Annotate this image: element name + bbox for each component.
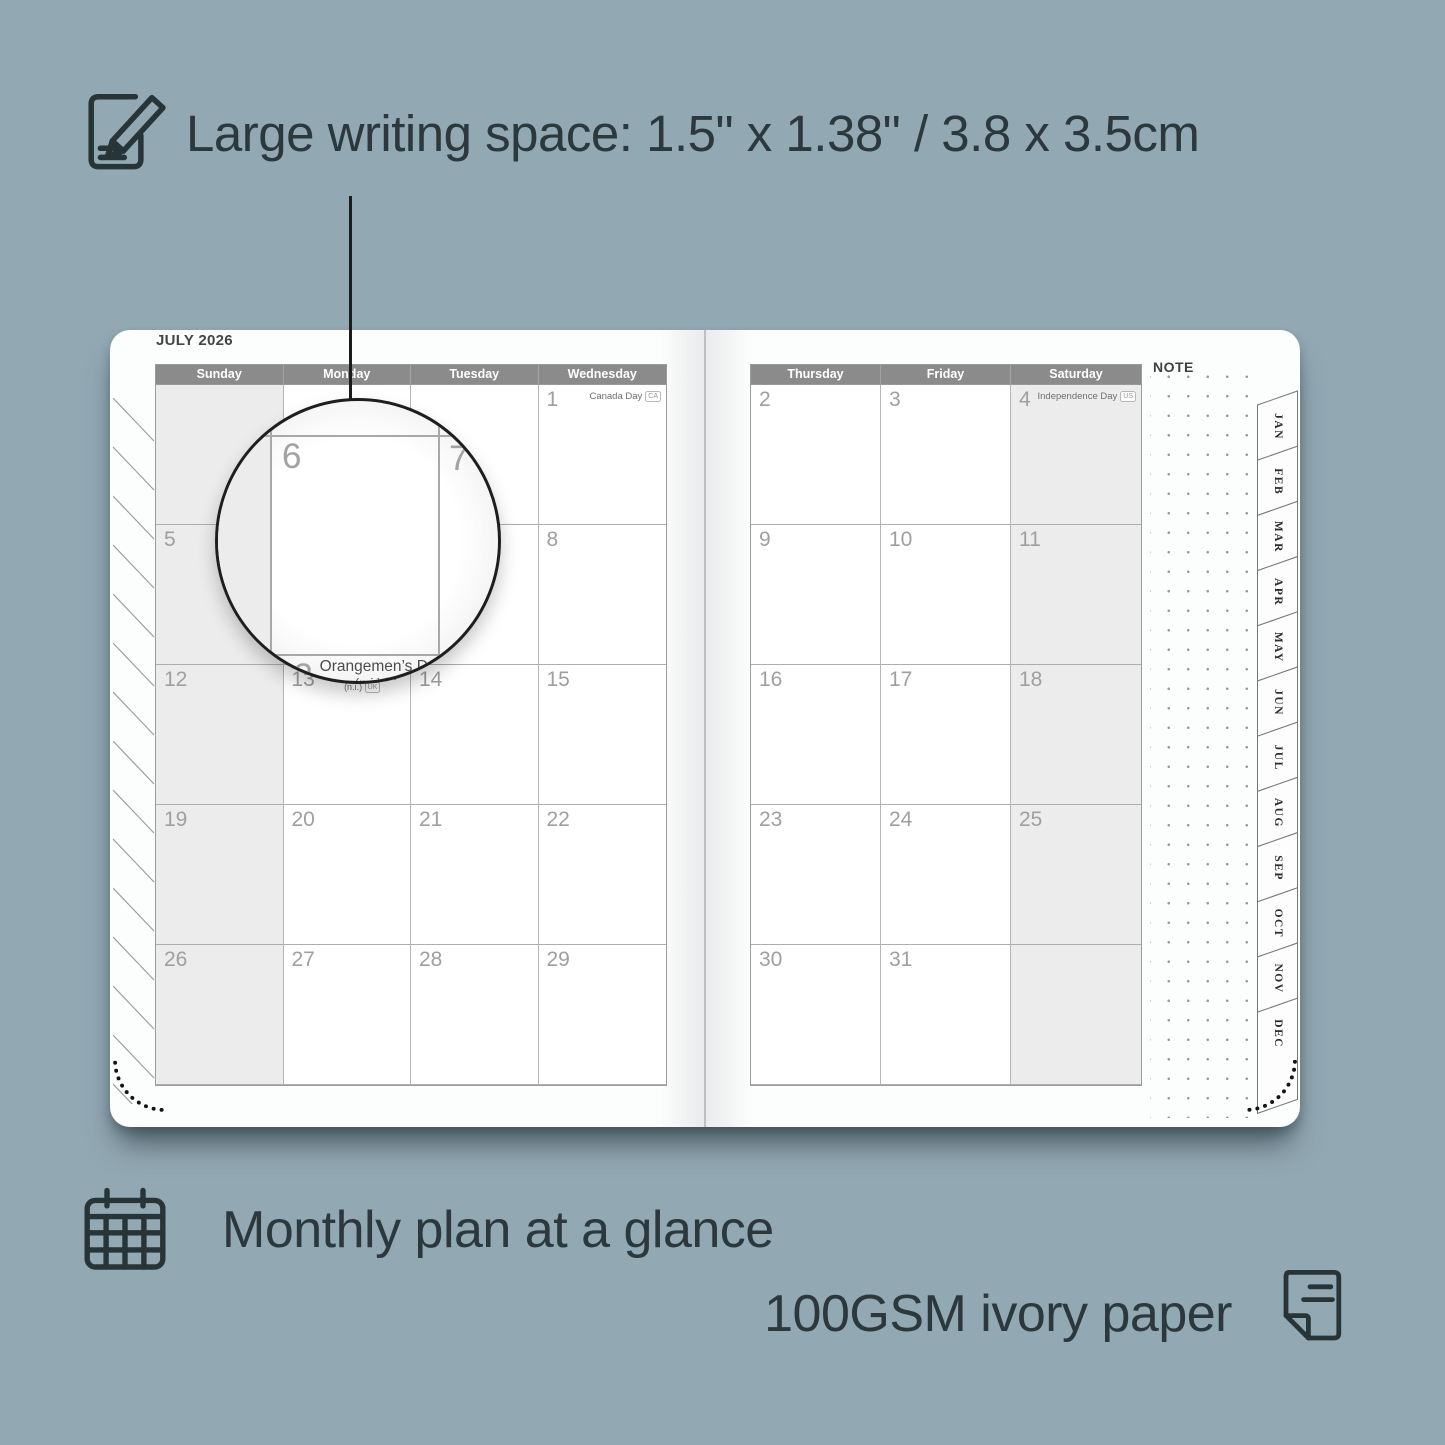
magnified-grid-line [218, 654, 498, 656]
month-tab-label: NOV [1272, 963, 1284, 993]
magnified-grid-line [270, 401, 272, 681]
magnified-holiday-label: Orangemen’s Day (n.i.) UK [304, 658, 460, 684]
month-tabs: JANFEBMARAPRMAYJUNJULAUGSEPOCTNOVDEC [1256, 388, 1299, 1127]
day-number: 16 [759, 668, 782, 692]
day-number: 19 [164, 808, 187, 832]
calendar-cell: 4Independence DayUS [1011, 385, 1141, 525]
month-tab-label: APR [1272, 578, 1284, 606]
day-header-saturday: Saturday [1011, 365, 1141, 385]
day-number: 27 [292, 948, 315, 972]
day-number: 5 [164, 528, 176, 552]
day-header-sunday: Sunday [156, 365, 284, 385]
calendar-cell: 24 [881, 805, 1011, 945]
calendar-cell: 31 [881, 945, 1011, 1085]
day-number: 28 [419, 948, 442, 972]
calendar-cell: 2 [751, 385, 881, 525]
calendar-cell: 30 [751, 945, 881, 1085]
feature-paper-label: 100GSM ivory paper [764, 1284, 1232, 1344]
paper-icon [1270, 1262, 1350, 1350]
region-badge: CA [645, 391, 661, 402]
day-header-thursday: Thursday [751, 365, 881, 385]
month-tab-label: MAR [1272, 521, 1284, 553]
day-number: 29 [547, 948, 570, 972]
month-tab-label: AUG [1272, 798, 1284, 828]
calendar-cell: 11 [1011, 525, 1141, 665]
day-number: 4 [1019, 388, 1031, 412]
day-number: 18 [1019, 668, 1042, 692]
calendar-cell: 28 [411, 945, 539, 1085]
month-tab-label: FEB [1272, 468, 1284, 495]
left-edge-strip [113, 398, 155, 1104]
calendar-cell: 22 [539, 805, 667, 945]
calendar-cell: 17 [881, 665, 1011, 805]
calendar-cell: 10 [881, 525, 1011, 665]
day-number: 2 [759, 388, 771, 412]
month-tab-label: JAN [1272, 413, 1284, 440]
month-title: JULY 2026 [156, 332, 233, 349]
day-header-friday: Friday [881, 365, 1011, 385]
day-number: 10 [889, 528, 912, 552]
day-header-wednesday: Wednesday [539, 365, 667, 385]
calendar-cell: 19 [156, 805, 284, 945]
calendar-cell: 12 [156, 665, 284, 805]
day-number: 11 [1019, 528, 1041, 552]
magnified-day-number: 6 [282, 437, 301, 477]
right-page-calendar: ThursdayFridaySaturday234Independence Da… [750, 364, 1142, 1086]
calendar-cell: 9 [751, 525, 881, 665]
region-badge: US [1120, 391, 1136, 402]
calendar-cell: 3 [881, 385, 1011, 525]
calendar-cell [1011, 945, 1141, 1085]
day-number: 1 [547, 388, 559, 412]
month-tab-label: JUN [1272, 689, 1284, 716]
day-number: 25 [1019, 808, 1042, 832]
calendar-cell: 15 [539, 665, 667, 805]
calendar-grid-icon [76, 1186, 174, 1276]
day-number: 24 [889, 808, 912, 832]
day-number: 21 [419, 808, 442, 832]
day-number: 22 [547, 808, 570, 832]
gutter-line [704, 330, 706, 1127]
pencil-note-icon [82, 82, 174, 174]
note-dot-grid [1150, 360, 1256, 1118]
calendar-cell: 29 [539, 945, 667, 1085]
day-number: 9 [759, 528, 771, 552]
holiday-label: Orangemen’s Day [304, 658, 460, 676]
day-number: 15 [547, 668, 570, 692]
feature-monthly-label: Monthly plan at a glance [222, 1200, 774, 1260]
calendar-cell: 23 [751, 805, 881, 945]
magnified-shaded-column [218, 401, 270, 681]
calendar-cell: 18 [1011, 665, 1141, 805]
calendar-cell: 20 [284, 805, 412, 945]
note-label: NOTE [1153, 359, 1198, 375]
day-header-tuesday: Tuesday [411, 365, 539, 385]
calendar-cell: 25 [1011, 805, 1141, 945]
magnified-day-number: 7 [449, 439, 468, 479]
month-tab-label: JUL [1272, 745, 1284, 771]
day-number: 30 [759, 948, 782, 972]
magnifier-connector-line [349, 196, 352, 399]
calendar-cell: 14 [411, 665, 539, 805]
calendar-cell: 26 [156, 945, 284, 1085]
magnified-grid-line [218, 435, 498, 437]
day-header-monday: Monday [284, 365, 412, 385]
day-number: 31 [889, 948, 912, 972]
day-number: 23 [759, 808, 782, 832]
holiday-label: Independence DayUS [1038, 391, 1137, 402]
day-number: 12 [164, 668, 187, 692]
day-number: 20 [292, 808, 315, 832]
day-number: 3 [889, 388, 901, 412]
month-tab-label: SEP [1272, 855, 1284, 881]
gutter-shade [706, 330, 750, 1127]
calendar-cell: 13Orangemen’s Day(n.i.) UK [284, 665, 412, 805]
planner-spread: JULY 2026 SundayMondayTuesdayWednesday1C… [110, 330, 1300, 1127]
calendar-cell: 27 [284, 945, 412, 1085]
day-number: 8 [547, 528, 559, 552]
magnified-grid-line [438, 401, 440, 681]
magnifier-circle: 6 7 13 Orangemen’s Day (n.i.) UK [215, 398, 501, 684]
calendar-cell: 1Canada DayCA [539, 385, 667, 525]
calendar-cell: 8 [539, 525, 667, 665]
day-number: 26 [164, 948, 187, 972]
calendar-cell: 16 [751, 665, 881, 805]
month-tab-label: MAY [1272, 632, 1284, 663]
holiday-label: Canada DayCA [589, 391, 661, 402]
calendar-cell: 21 [411, 805, 539, 945]
feature-headline: Large writing space: 1.5" x 1.38" / 3.8 … [186, 104, 1199, 163]
month-tab-label: OCT [1272, 909, 1284, 938]
day-number: 17 [889, 668, 912, 692]
month-tab-label: DEC [1272, 1019, 1284, 1048]
